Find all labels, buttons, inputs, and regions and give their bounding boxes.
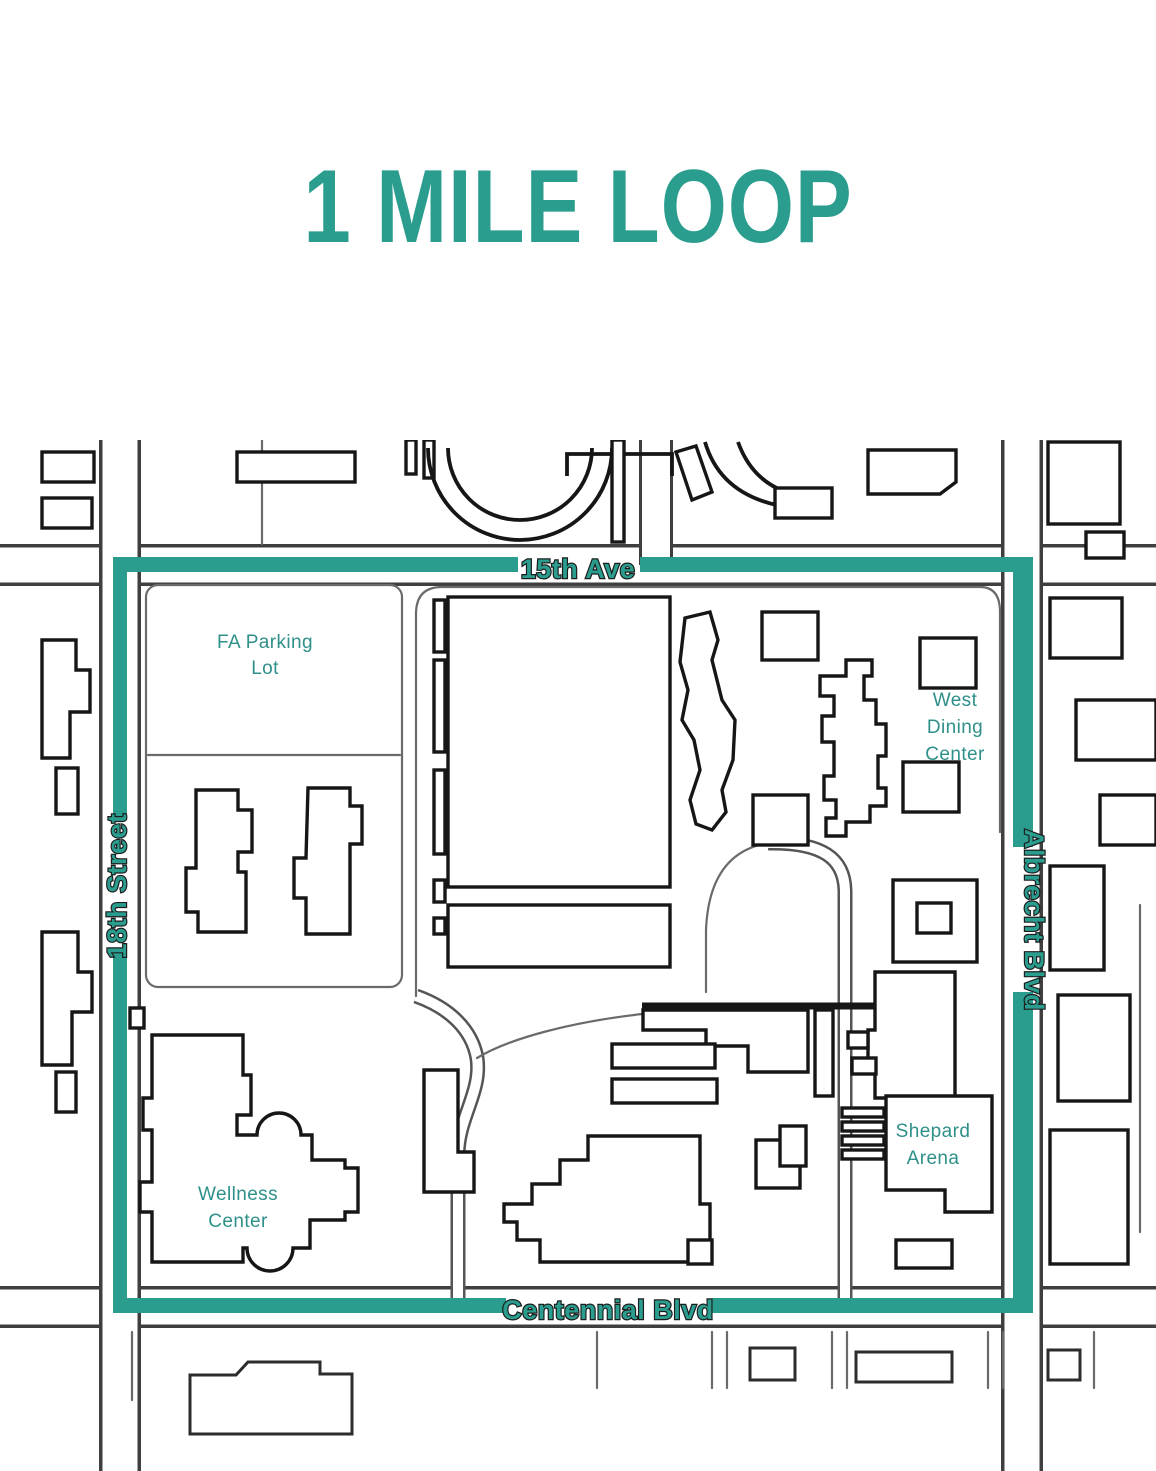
route-segment-18th-street-south [113, 950, 127, 1313]
building-outline [842, 1150, 884, 1159]
dorm-building [186, 790, 252, 932]
building-outline [56, 768, 78, 814]
place-label-wellness-center: Wellness [198, 1184, 278, 1205]
stadium-arc-inner [448, 448, 592, 520]
street-label-centennial-blvd: Centennial Blvd [502, 1295, 714, 1325]
building-outline [612, 440, 624, 542]
building-outline [434, 600, 445, 652]
building-outline [753, 795, 808, 845]
route-segment-15th-ave-east [640, 557, 1032, 572]
building-outline [1048, 442, 1120, 524]
building-outline [1050, 1130, 1128, 1264]
place-label-west-dining-center: Center [925, 744, 985, 765]
building-outline [1100, 795, 1156, 845]
building-outline [434, 660, 445, 752]
building-outline [612, 1044, 715, 1068]
building-outline [406, 440, 416, 474]
campus-map: 15th Ave 18th Street Albrecht Blvd Cente… [0, 440, 1156, 1471]
building-outline [42, 498, 92, 528]
building-outline [896, 1240, 952, 1268]
building-outline [42, 932, 92, 1065]
street-label-18th-street: 18th Street [102, 813, 132, 958]
building-outline [903, 762, 959, 812]
building-outline [56, 1072, 76, 1112]
stadium-arc-outer [428, 448, 612, 540]
building-outline [815, 1010, 833, 1096]
place-label-shepard-arena: Arena [907, 1148, 960, 1169]
route-segment-centennial-west [113, 1298, 506, 1313]
place-label-west-dining-center: West [933, 690, 978, 711]
route-segment-centennial-east [712, 1298, 1032, 1313]
building-outline [856, 1352, 952, 1382]
building-outline [780, 1126, 806, 1166]
wellness-center-building [140, 1035, 358, 1271]
route-segment-18th-street-north [113, 557, 127, 819]
building-outline [434, 770, 445, 854]
building-outline [130, 1008, 144, 1028]
building-outline [848, 1032, 868, 1048]
building-outline [762, 612, 818, 660]
street-label-albrecht-blvd: Albrecht Blvd [1019, 829, 1049, 1011]
building-outline [1050, 598, 1122, 658]
building-outline [434, 918, 445, 934]
building-outline [868, 972, 955, 1106]
place-label-fa-parking-lot: FA Parking [217, 632, 313, 653]
place-label-fa-parking-lot: Lot [251, 658, 279, 679]
building-outline [680, 612, 735, 830]
building-outline [1050, 866, 1104, 970]
building-outline [688, 1240, 712, 1264]
building-outline [842, 1122, 884, 1131]
place-label-shepard-arena: Shepard [896, 1121, 971, 1142]
building-outline [504, 1136, 710, 1262]
building-outline [434, 880, 445, 902]
building-outline [775, 488, 832, 518]
building-outline [750, 1348, 795, 1380]
building-outline [1048, 1350, 1080, 1380]
route-segment-15th-ave-west [113, 557, 518, 572]
building-outline [1086, 532, 1124, 558]
sidewalk-curve [706, 843, 768, 992]
building-outline [1058, 995, 1130, 1101]
place-label-wellness-center: Center [208, 1211, 268, 1232]
building-outline [920, 638, 976, 688]
building-outline [42, 452, 94, 482]
quad-building [448, 597, 670, 887]
place-label-west-dining-center: Dining [927, 717, 983, 738]
route-segment-albrecht-north [1013, 557, 1033, 847]
route-segment-albrecht-south [1013, 992, 1033, 1313]
building-outline [42, 640, 90, 758]
flyer-page: 1 MILE LOOP [0, 0, 1156, 1471]
building-outline [190, 1362, 352, 1434]
building-outline [868, 450, 956, 494]
campus-map-svg: 15th Ave 18th Street Albrecht Blvd Cente… [0, 440, 1156, 1471]
page-title: 1 MILE LOOP [104, 148, 1052, 267]
west-dining-building [820, 660, 886, 836]
building-outline [676, 446, 712, 500]
building-outline [852, 1058, 876, 1074]
building-outline [842, 1108, 884, 1117]
street-label-15th-ave: 15th Ave [521, 554, 636, 584]
building-outline [612, 1079, 717, 1103]
dorm-building [294, 788, 362, 934]
building-outline [448, 905, 670, 967]
building-outline [237, 452, 355, 482]
courtyard-inner [917, 903, 951, 933]
building-outline [842, 1136, 884, 1145]
building-outline [1076, 700, 1156, 760]
